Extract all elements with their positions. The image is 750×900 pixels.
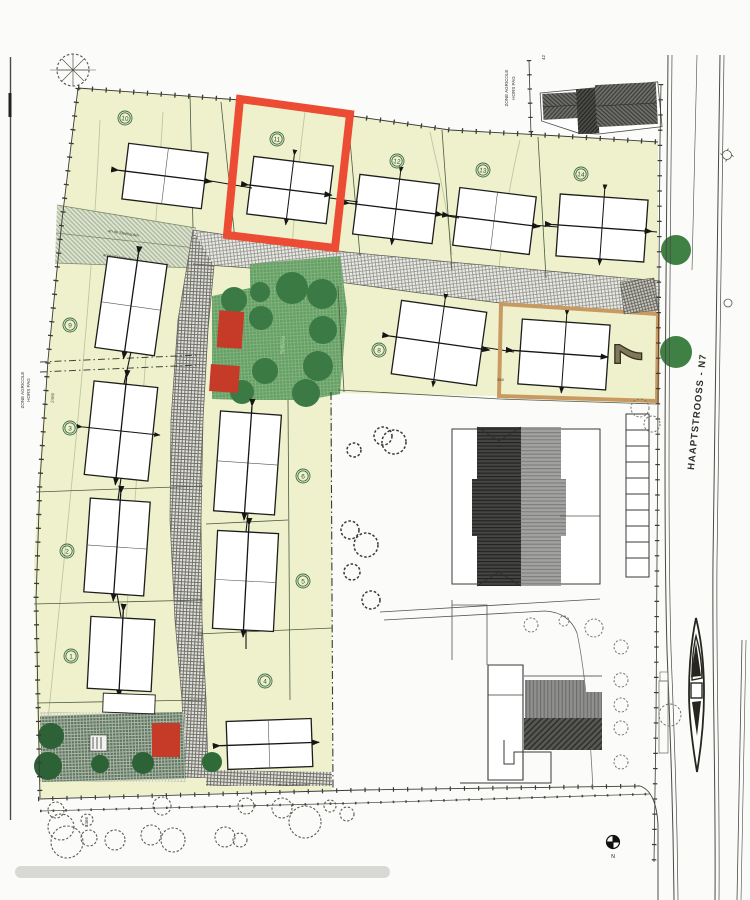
svg-text:2466: 2466: [50, 392, 56, 403]
svg-text:N: N: [611, 854, 615, 860]
svg-text:358: 358: [497, 377, 504, 382]
svg-text:2: 2: [65, 549, 69, 556]
svg-text:HORS PAG: HORS PAG: [511, 76, 516, 100]
svg-text:1: 1: [69, 654, 73, 661]
svg-text:ZONE AGRICOLE: ZONE AGRICOLE: [20, 372, 25, 409]
svg-text:9: 9: [68, 323, 72, 330]
svg-text:8: 8: [377, 348, 381, 355]
svg-text:4: 4: [263, 679, 267, 686]
svg-text:HORS PAG: HORS PAG: [26, 378, 31, 402]
svg-text:7: 7: [608, 344, 649, 365]
svg-text:5: 5: [301, 579, 305, 586]
svg-text:ZONE AGRICOLE: ZONE AGRICOLE: [504, 70, 509, 107]
svg-text:6: 6: [301, 474, 305, 481]
svg-text:an de Steekaulen: an de Steekaulen: [278, 782, 309, 787]
svg-text:42: 42: [541, 54, 546, 60]
svg-text:3: 3: [68, 426, 72, 433]
